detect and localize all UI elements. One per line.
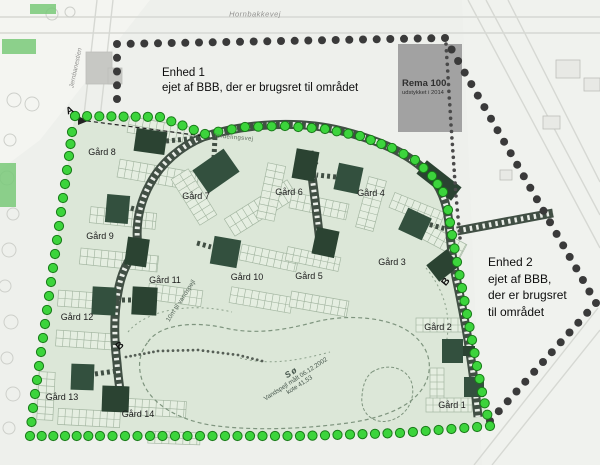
enhed1-body: ejet af BBB, der er brugsret til området [162,81,358,96]
farm-label: Gård 12 [61,312,94,322]
enhed1-title: Enhed 1 [162,66,358,81]
farm-label: Gård 3 [378,257,406,267]
farm-label: Gård 6 [275,187,303,197]
enhed1-annotation: Enhed 1 ejet af BBB, der er brugsret til… [162,66,358,96]
farm-label: Gård 14 [122,409,155,419]
farm-label: Gård 2 [424,322,452,332]
rema-subtitle: udstykket i 2014 [402,90,446,97]
enhed2-title: Enhed 2 [488,254,567,271]
site-plan: Hornbakkevej Jernbanestien fordelingsvej… [0,0,600,465]
rema-title: Rema 100 [402,78,446,90]
farm-label: Gård 13 [46,392,79,402]
farm-label: Gård 11 [149,275,181,285]
farm-label: Gård 5 [295,271,323,281]
farm-label: Gård 8 [88,147,116,157]
farm-label: Gård 1 [438,400,466,410]
enhed2-line: der er brugsret [488,287,567,304]
enhed2-annotation: Enhed 2 ejet af BBB, der er brugsret til… [488,254,567,320]
enhed2-line: ejet af BBB, [488,271,567,288]
farm-label: Gård 4 [357,188,385,198]
road-label-hornbakkevej: Hornbakkevej [229,10,281,19]
farm-label: Gård 7 [182,191,210,201]
rema-parcel-label: Rema 100 udstykket i 2014 [402,78,446,97]
farm-label: Gård 10 [231,272,264,282]
enhed2-line: til området [488,304,567,321]
farm-label: Gård 9 [86,231,114,241]
